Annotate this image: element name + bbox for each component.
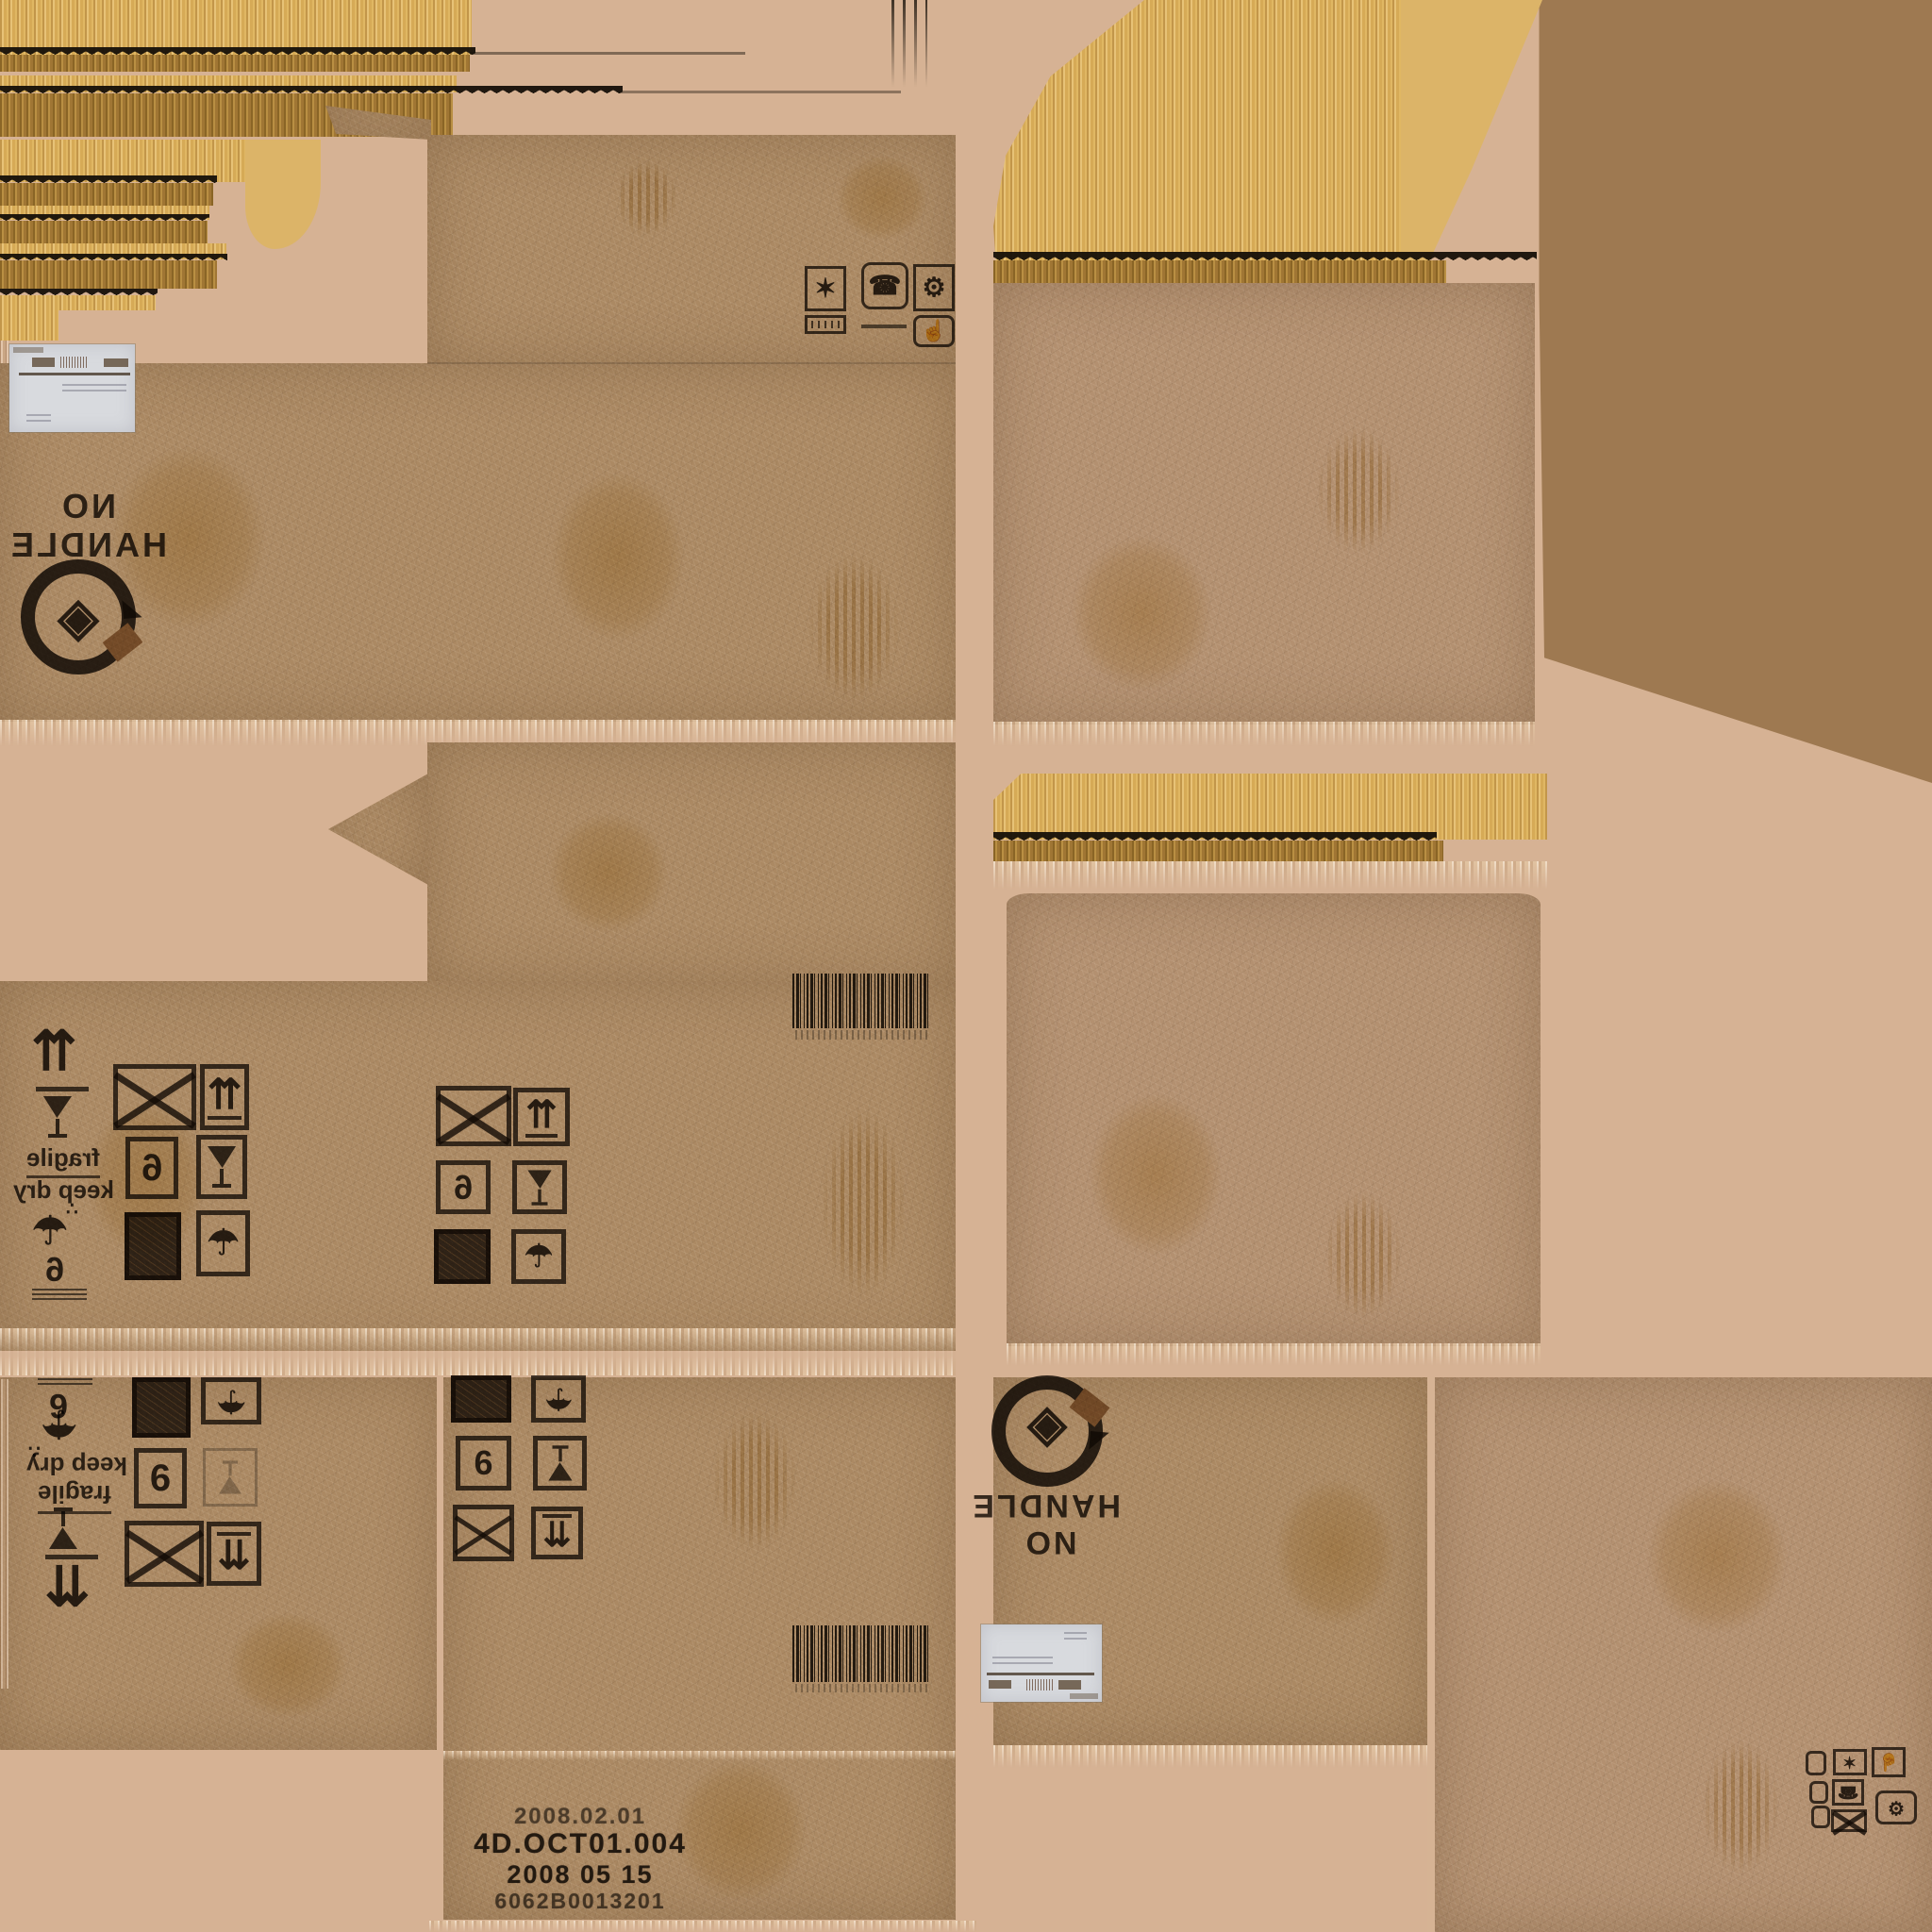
glass-icon xyxy=(548,1445,573,1480)
label-bar xyxy=(32,358,55,367)
corrugated-strip-dark xyxy=(0,221,208,243)
icon-number-box: 6 xyxy=(125,1137,178,1199)
corrugation-zigzag xyxy=(0,289,158,295)
panel-middle-upper xyxy=(427,742,956,986)
label-fine-print xyxy=(1064,1632,1087,1641)
no-handle-line2: HANDLE xyxy=(979,1487,1121,1524)
orientation-number: 6 xyxy=(45,1253,64,1287)
umbrella-icon: ☂ xyxy=(32,1211,68,1251)
icon-glass-box xyxy=(533,1436,587,1491)
ghost-corrugation-stain xyxy=(1302,406,1415,575)
label-mark xyxy=(1070,1693,1098,1699)
stain xyxy=(208,1594,368,1736)
corrugated-strip xyxy=(993,774,1547,840)
rain-dots: ∴ xyxy=(66,1200,78,1219)
corrugation-zigzag xyxy=(993,832,1437,841)
torn-fiber-streaks xyxy=(1007,1343,1541,1366)
hand-icon: ☝ xyxy=(1878,1754,1899,1771)
glass-icon xyxy=(219,1460,241,1493)
corrugated-strip xyxy=(0,295,156,310)
shipping-label xyxy=(981,1624,1102,1702)
icon-keep-dry-box: ☂ xyxy=(531,1375,586,1423)
icon-number-box: 6 xyxy=(456,1436,511,1491)
flute-edge-line xyxy=(470,52,745,55)
glass-base xyxy=(48,1134,67,1138)
icon-glass-box xyxy=(196,1135,247,1199)
corrugated-block xyxy=(993,0,1401,283)
stain xyxy=(1623,1453,1811,1660)
icon-solid-box xyxy=(132,1377,191,1438)
no-handle-line2: HANDLE xyxy=(8,525,168,564)
icon-up-arrows-box: ⇈ xyxy=(200,1064,249,1130)
panel-seam xyxy=(427,362,956,364)
panel-middle-notch xyxy=(328,774,428,885)
icon-keep-dry-box: ☂ xyxy=(196,1210,250,1276)
corrugation-smooth-block xyxy=(1401,0,1542,292)
barcode-digits xyxy=(795,1030,927,1040)
keep-dry-text: keep dry xyxy=(26,1451,127,1480)
box-logo-stamp: ◈ xyxy=(21,559,136,675)
print-date-line1: 2008.02.01 xyxy=(443,1804,717,1830)
icon-number-box: 6 xyxy=(134,1448,187,1508)
label-rule xyxy=(19,373,130,375)
corrugated-strip xyxy=(0,310,58,341)
torn-fiber-streaks xyxy=(993,722,1535,746)
stamp-underline xyxy=(861,325,907,328)
label-barcode xyxy=(60,357,89,368)
number-icon: 6 xyxy=(454,1171,473,1205)
box-logo-stamp: ◈ xyxy=(991,1375,1103,1487)
corrugated-strip-dark xyxy=(993,260,1446,285)
barcode-digits xyxy=(795,1684,927,1692)
ghost-corrugation-stain xyxy=(807,1075,920,1330)
ghost-corrugation-stain xyxy=(792,528,915,726)
label-fine-print xyxy=(62,382,126,391)
icon-gear-box: ⚙ xyxy=(1875,1790,1917,1824)
down-arrows-icon: ⇊ xyxy=(44,1560,91,1615)
icon-keep-dry-box: ☂ xyxy=(201,1377,261,1424)
dark-fiber-streaks xyxy=(891,0,927,87)
flute-edge-line xyxy=(618,91,901,93)
edge-fiber-strip xyxy=(0,1379,8,1689)
icon-glass-box xyxy=(512,1160,567,1214)
torn-fiber-streaks xyxy=(429,1921,976,1932)
icon-solid-box xyxy=(125,1212,181,1280)
number-icon: 6 xyxy=(150,1459,171,1497)
glass-icon xyxy=(527,1170,552,1205)
umbrella-icon: ☂ xyxy=(217,1385,245,1417)
corrugation-zigzag xyxy=(0,47,475,55)
icon-star-box: ✶ xyxy=(1833,1749,1867,1775)
icon-keep-dry-box: ☂ xyxy=(511,1229,566,1284)
icon-crossed-box xyxy=(1831,1809,1867,1832)
ghost-corrugation-stain xyxy=(698,1387,811,1575)
no-handle-line1: NO xyxy=(8,487,168,525)
number-icon: 6 xyxy=(474,1446,492,1480)
starburst-icon: ✶ xyxy=(814,275,836,302)
label-bar xyxy=(1058,1680,1081,1690)
stain xyxy=(1066,1066,1245,1283)
gear-icon: ⚙ xyxy=(922,275,945,301)
icon-up-arrows-box: ⇈ xyxy=(513,1088,570,1146)
ghost-corrugation-stain xyxy=(1689,1717,1792,1896)
icon-glass-box-faint xyxy=(203,1448,258,1507)
corrugated-strip-dark xyxy=(0,55,470,72)
label-barcode xyxy=(1026,1679,1053,1690)
corrugation-zigzag xyxy=(993,252,1537,260)
fragile-text: fragile xyxy=(26,1143,100,1178)
icon-crossed-box xyxy=(113,1064,196,1130)
umbrella-icon: ☂ xyxy=(42,1404,77,1443)
corrugated-strip-dark xyxy=(993,841,1443,861)
print-serial-line4: 6062B0013201 xyxy=(443,1889,717,1914)
icon-solid-box xyxy=(434,1229,491,1284)
texture-atlas-sheet: ✶ ☎ ⚙ ☝ NO HANDLE ◈ xyxy=(0,0,1932,1932)
corrugation-zigzag xyxy=(0,86,623,93)
stain xyxy=(1255,1453,1415,1651)
corrugated-strip-dark xyxy=(0,260,217,289)
glass-bowl xyxy=(49,1526,77,1549)
this-way-up-arrows: ⇈ xyxy=(31,1024,77,1079)
print-date-line3: 2008 05 15 xyxy=(443,1860,717,1890)
open-box-icon: ◈ xyxy=(58,591,98,643)
icon-small-box xyxy=(1806,1751,1826,1775)
icon-down-arrows-box: ⇊ xyxy=(531,1507,583,1559)
icon-hand-box: ☝ xyxy=(913,315,955,347)
fragile-glass-icon xyxy=(49,1507,77,1549)
corrugation-zigzag xyxy=(0,254,227,260)
icon-hand-box: ☝ xyxy=(1872,1747,1906,1777)
corrugation-zigzag xyxy=(0,214,209,221)
corrugated-strip-dark xyxy=(0,183,213,206)
ghost-corrugation-stain xyxy=(1311,1170,1415,1340)
stamp-lines xyxy=(38,1377,92,1385)
icon-small-box xyxy=(1809,1781,1828,1804)
ghost-corrugation-stain xyxy=(604,146,689,250)
tally-marks xyxy=(811,321,840,328)
arrows-baseline xyxy=(36,1087,89,1091)
torn-fiber-streaks xyxy=(993,861,1547,890)
starburst-icon: ✶ xyxy=(1842,1754,1857,1771)
barcode xyxy=(792,974,929,1028)
icon-down-arrows-box: ⇊ xyxy=(207,1522,261,1586)
label-mark xyxy=(13,347,43,353)
open-box-icon: ◈ xyxy=(1027,1406,1067,1457)
hand-icon: ☝ xyxy=(921,321,946,341)
label-fine-print xyxy=(26,410,51,422)
torn-fiber-streaks xyxy=(0,1353,956,1375)
label-bar xyxy=(104,358,128,367)
torn-fiber-streaks xyxy=(993,1745,1427,1768)
glass-base xyxy=(54,1507,73,1511)
corrugation-zigzag xyxy=(0,175,217,183)
icon-crossed-box xyxy=(453,1505,514,1561)
stain xyxy=(528,443,708,670)
glass-stem xyxy=(56,1119,59,1134)
gear-icon: ⚙ xyxy=(1888,1798,1905,1817)
stain xyxy=(528,792,689,953)
icon-solid-box xyxy=(451,1375,511,1423)
glass-bowl xyxy=(43,1096,72,1119)
label-fine-print xyxy=(992,1657,1053,1666)
icon-phone-box: ☎ xyxy=(861,262,908,309)
icon-marks-box xyxy=(805,315,846,334)
glass-stem xyxy=(61,1511,65,1526)
no-handle-stamp: NO HANDLE xyxy=(979,1487,1121,1560)
icon-gear-box: ⚙ xyxy=(913,264,955,311)
icon-crossed-box xyxy=(125,1521,204,1587)
panel-gap xyxy=(1427,1377,1435,1932)
keep-dry-text: keep dry xyxy=(13,1175,114,1205)
stain xyxy=(821,142,943,255)
up-arrows-icon: ⇈ xyxy=(208,1074,242,1120)
shipping-label xyxy=(9,344,135,432)
down-arrows-icon: ⇊ xyxy=(542,1514,571,1552)
glass-icon xyxy=(208,1146,236,1188)
stain xyxy=(1047,509,1236,717)
no-handle-stamp: NO HANDLE xyxy=(8,487,168,565)
label-rule xyxy=(987,1673,1094,1675)
stamp-lines xyxy=(32,1289,87,1300)
label-bar xyxy=(989,1680,1011,1689)
corrugation-smooth-blob xyxy=(245,140,321,249)
no-handle-line1: NO xyxy=(979,1524,1121,1560)
down-arrows-icon: ⇊ xyxy=(217,1532,250,1575)
fragile-glass-icon xyxy=(43,1096,72,1138)
telephone-icon: ☎ xyxy=(869,273,902,299)
up-arrows-icon: ⇈ xyxy=(525,1096,558,1138)
icon-number-box: 6 xyxy=(436,1160,491,1214)
print-code-line2: 4D.OCT01.004 xyxy=(429,1828,731,1860)
icon-crossed-box xyxy=(436,1086,511,1146)
icon-star-box: ✶ xyxy=(805,266,846,311)
telephone-icon: ☎ xyxy=(1838,1784,1858,1801)
icon-phone-box: ☎ xyxy=(1832,1779,1864,1806)
umbrella-icon: ☂ xyxy=(525,1241,553,1273)
umbrella-icon: ☂ xyxy=(207,1225,239,1261)
umbrella-icon: ☂ xyxy=(545,1384,573,1414)
barcode xyxy=(792,1625,931,1682)
number-icon: 6 xyxy=(142,1149,162,1187)
icon-small-box xyxy=(1811,1806,1830,1828)
